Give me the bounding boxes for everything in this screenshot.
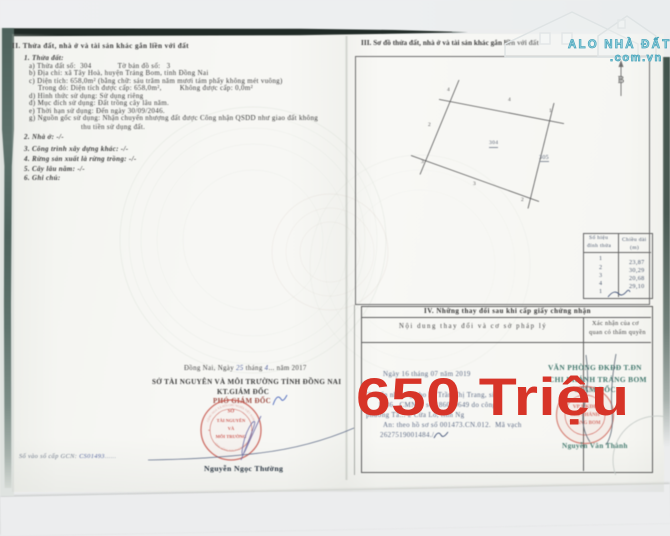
- svg-text:SỞ: SỞ: [228, 409, 235, 415]
- svg-text:B: B: [618, 75, 625, 86]
